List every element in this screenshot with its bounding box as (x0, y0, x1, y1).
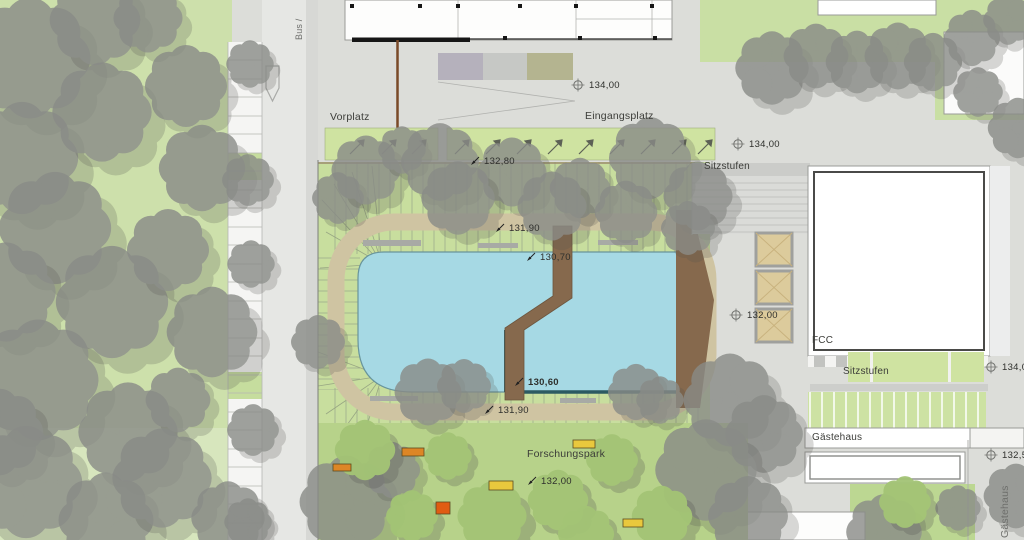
crosshair-icon (984, 360, 998, 374)
elevation-eingangsplatz: 134,00 (731, 137, 780, 151)
spot-arrow-icon (514, 377, 524, 387)
elevation-pond-upper-walk: 131,90 (495, 221, 540, 235)
spot-arrow-icon (526, 252, 536, 262)
spot-arrow-icon (470, 156, 480, 166)
gaestehaus-side-label: Gästehaus (999, 485, 1011, 538)
crosshair-icon (984, 448, 998, 462)
spot-arrow-icon (495, 223, 505, 233)
sitzstufen-right-label: Sitzstufen (843, 366, 889, 377)
forschungspark-label: Forschungspark (527, 448, 605, 460)
site-plan: Bus / Vorplatz Eingangsplatz Sitzstufen … (0, 0, 1024, 540)
elevation-upper-path: 132,80 (470, 154, 515, 168)
eingangsplatz-label: Eingangsplatz (585, 110, 654, 122)
fcc-label: FCC (812, 335, 833, 346)
sitzstufen-top-label: Sitzstufen (704, 161, 750, 172)
bus-lane-label: Bus / (294, 18, 304, 40)
crosshair-icon (731, 137, 745, 151)
spot-arrow-icon (484, 405, 494, 415)
elevation-pond-bottom-edge: 130,60 (514, 375, 559, 389)
gaestehaus-label: Gästehaus (812, 432, 862, 443)
elevation-pond-lower-walk: 131,90 (484, 403, 529, 417)
elevation-sitzstufen-right: 134,00 (984, 360, 1024, 374)
vorplatz-label: Vorplatz (330, 111, 370, 123)
labels-layer: Bus / Vorplatz Eingangsplatz Sitzstufen … (0, 0, 1024, 540)
elevation-vorplatz-plaza: 134,00 (571, 78, 620, 92)
crosshair-icon (729, 308, 743, 322)
spot-arrow-icon (527, 476, 537, 486)
elevation-pond-top-edge: 130,70 (526, 250, 571, 264)
elevation-seat-cubes: 132,00 (729, 308, 778, 322)
elevation-gaestehaus-plaza: 132,5 (984, 448, 1024, 462)
crosshair-icon (571, 78, 585, 92)
elevation-forschungspark: 132,00 (527, 474, 572, 488)
